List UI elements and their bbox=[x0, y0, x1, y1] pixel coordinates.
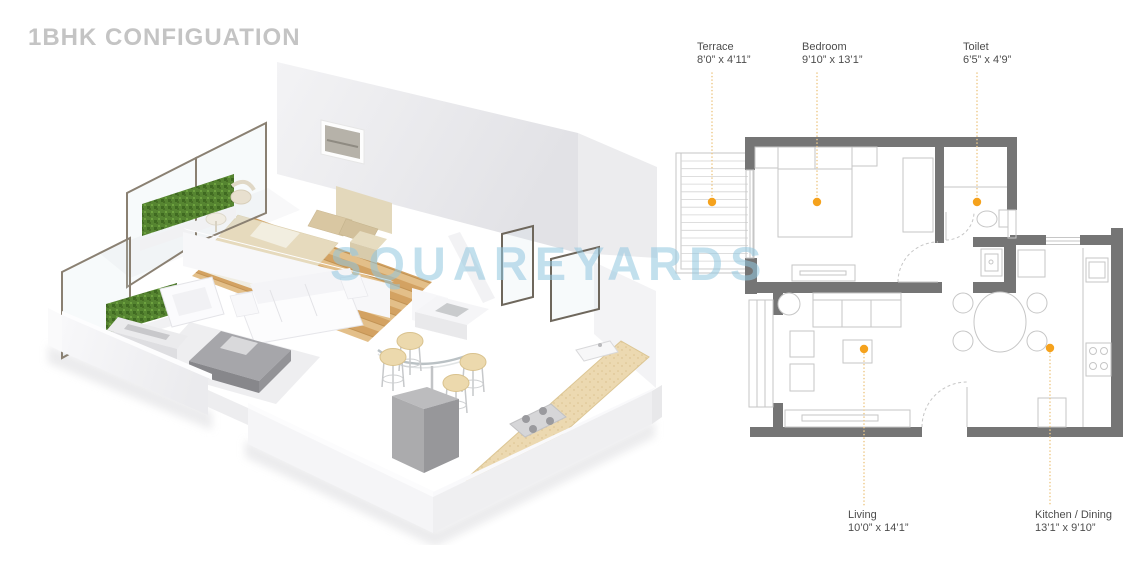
isometric-render-3d bbox=[30, 55, 675, 545]
coffee-table bbox=[843, 340, 872, 363]
room-name: Terrace bbox=[697, 41, 751, 54]
room-name: Living bbox=[848, 509, 909, 522]
room-name: Toilet bbox=[963, 41, 1011, 54]
room-label-living: Living 10’0” x 14’1” bbox=[848, 509, 909, 535]
door-arc bbox=[898, 242, 938, 282]
room-label-terrace: Terrace 8’0” x 4’11” bbox=[697, 41, 751, 67]
room-dimensions: 9’10” x 13’1” bbox=[802, 54, 863, 67]
room-dimensions: 6’5” x 4’9” bbox=[963, 54, 1011, 67]
bedroom-furniture bbox=[755, 147, 938, 282]
room-marker-living bbox=[860, 345, 868, 353]
dining-table bbox=[953, 292, 1047, 352]
room-dimensions: 8’0” x 4’11” bbox=[697, 54, 751, 67]
island-cube bbox=[392, 387, 459, 473]
fridge bbox=[1038, 398, 1066, 427]
wc-tank bbox=[999, 210, 1008, 227]
room-label-kitchen-dining: Kitchen / Dining 13’1” x 9’10” bbox=[1035, 509, 1112, 535]
door-arc bbox=[922, 382, 967, 427]
side-table bbox=[778, 293, 800, 315]
terrace-area bbox=[676, 153, 753, 273]
door-arc bbox=[946, 212, 974, 240]
wardrobe bbox=[903, 158, 933, 232]
toilet-fixtures bbox=[944, 187, 1008, 240]
wash-basin bbox=[981, 249, 1002, 276]
page-title: 1BHK CONFIGUATION bbox=[28, 24, 301, 52]
bar-stool bbox=[380, 349, 406, 392]
room-marker-kitchen bbox=[1046, 344, 1054, 352]
stove-icon bbox=[1086, 343, 1111, 376]
room-marker-toilet bbox=[973, 198, 981, 206]
floor-plan-2d bbox=[660, 30, 1140, 550]
tv-unit bbox=[785, 410, 910, 427]
room-marker-bedroom bbox=[813, 198, 821, 206]
room-name: Kitchen / Dining bbox=[1035, 509, 1112, 522]
room-dimensions: 13’1” x 9’10” bbox=[1035, 522, 1112, 535]
room-dimensions: 10’0” x 14’1” bbox=[848, 522, 909, 535]
floor-plan-page: 1BHK CONFIGUATION bbox=[0, 0, 1140, 580]
room-label-bedroom: Bedroom 9’10” x 13’1” bbox=[802, 41, 863, 67]
room-label-toilet: Toilet 6’5” x 4’9” bbox=[963, 41, 1011, 67]
room-name: Bedroom bbox=[802, 41, 863, 54]
wc-icon bbox=[977, 211, 997, 227]
living-furniture bbox=[778, 293, 967, 427]
sofa bbox=[813, 293, 901, 327]
armchair-3d bbox=[160, 277, 224, 327]
room-marker-terrace bbox=[708, 198, 716, 206]
